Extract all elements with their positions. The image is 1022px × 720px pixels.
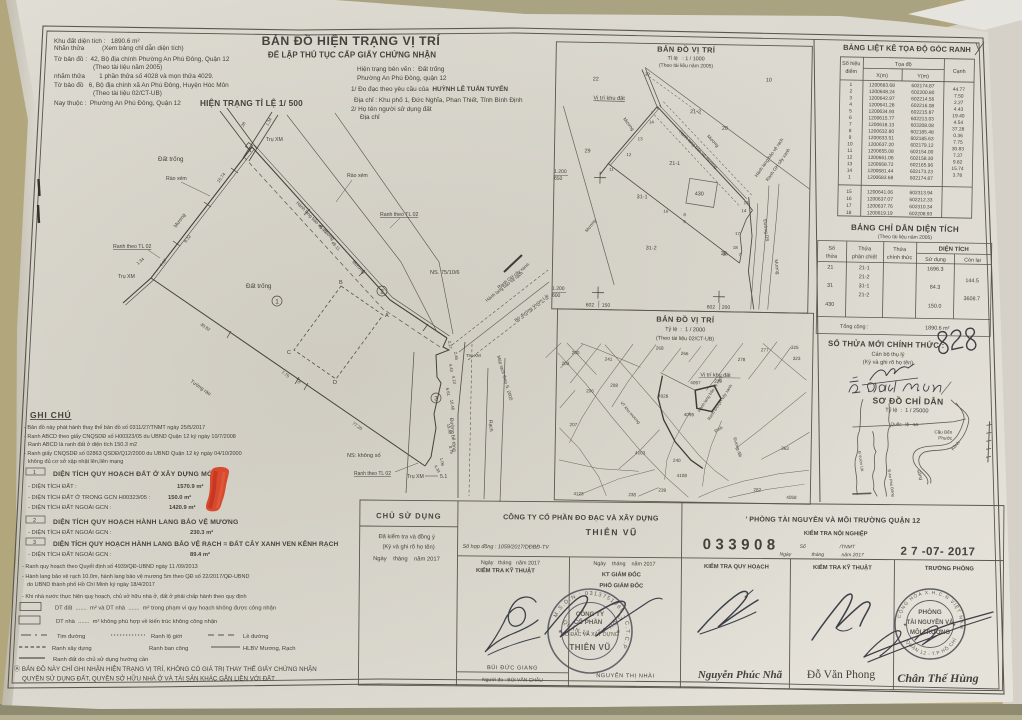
svg-text:0.36: 0.36	[953, 133, 963, 139]
svg-text:Cạnh: Cạnh	[953, 69, 966, 75]
svg-text:năm 2017: năm 2017	[842, 552, 865, 558]
svg-text:C: C	[287, 350, 291, 356]
svg-text:1200641.06: 1200641.06	[867, 189, 893, 195]
svg-text:1200655.08: 1200655.08	[868, 148, 894, 154]
svg-text:(Theo tài liệu 02/CT-UB): (Theo tài liệu 02/CT-UB)	[93, 90, 162, 97]
svg-text:17: 17	[735, 231, 741, 236]
svg-text:không đủ cơ sở xập nhật lên,li: không đủ cơ sở xập nhật lên,liên mạng	[28, 458, 123, 465]
svg-text:7.50: 7.50	[954, 93, 964, 99]
svg-text:Cán bộ thụ lý: Cán bộ thụ lý	[871, 352, 904, 359]
svg-text:Tim đường: Tim đường	[57, 634, 85, 640]
svg-text:Ranh theo TL 02: Ranh theo TL 02	[380, 212, 418, 218]
svg-text:Tỉ lệ : 1 / 1000: Tỉ lệ : 1 / 1000	[667, 55, 704, 63]
svg-text:CHỦ SỬ DỤNG: CHỦ SỬ DỤNG	[376, 511, 441, 521]
svg-text:- Khi nhà nước thực hiện quy: - Khi nhà nước thực hiện quy hoạch, chủ …	[22, 593, 247, 600]
svg-text:266: 266	[681, 351, 689, 356]
svg-text:200: 200	[722, 305, 731, 311]
svg-text:602174.87: 602174.87	[910, 175, 933, 181]
svg-text:602: 602	[707, 304, 716, 310]
svg-text:14: 14	[847, 168, 853, 174]
svg-text:3608.7: 3608.7	[964, 296, 981, 302]
svg-text:- Hành lang bảo vệ rạch 10.0m,: - Hành lang bảo vệ rạch 10.0m, hành lang…	[22, 574, 249, 580]
svg-text:12: 12	[626, 152, 632, 157]
svg-text:Trụ XM: Trụ XM	[407, 474, 424, 480]
svg-text:16: 16	[846, 196, 852, 202]
svg-text:phân chiết: phân chiết	[852, 254, 877, 260]
svg-text:4028: 4028	[658, 394, 669, 399]
svg-text:1: 1	[33, 470, 36, 476]
svg-text:Ranh xây dựng: Ranh xây dựng	[52, 646, 92, 652]
svg-text:2: 2	[849, 89, 852, 95]
svg-text:HLBV Mương, Rạch: HLBV Mương, Rạch	[243, 646, 295, 652]
svg-text:4.43: 4.43	[954, 107, 964, 113]
svg-text:1200681.44: 1200681.44	[867, 168, 893, 174]
svg-text:10: 10	[766, 77, 772, 83]
svg-text:13: 13	[847, 161, 853, 167]
svg-text:9.82: 9.82	[953, 159, 963, 165]
svg-text:602200.80: 602200.80	[911, 90, 934, 96]
svg-text:KT GIÁM ĐỐC: KT GIÁM ĐỐC	[602, 571, 642, 578]
svg-text:18: 18	[846, 210, 852, 216]
svg-text:150.0 m²: 150.0 m²	[168, 494, 191, 501]
svg-text:- DIỆN TÍCH ĐẤT :: - DIỆN TÍCH ĐẤT :	[28, 482, 77, 490]
svg-text:2: 2	[380, 289, 384, 296]
svg-text:1200615.77: 1200615.77	[868, 115, 894, 121]
svg-text:1.200: 1.200	[554, 169, 567, 175]
svg-text:- Ranh giấy CNQSDĐ số 02863 Q: - Ranh giấy CNQSDĐ số 02863 QSDĐ/Q12/200…	[24, 451, 242, 457]
svg-text:4058: 4058	[786, 495, 797, 500]
svg-text:NGUYỄN THỊ NHÀI: NGUYỄN THỊ NHÀI	[596, 672, 654, 680]
svg-text:Đỗ Văn Phong: Đỗ Văn Phong	[807, 668, 875, 681]
svg-text:- DIỆN TÍCH ĐẤT NGOÀI GCN :: - DIỆN TÍCH ĐẤT NGOÀI GCN :	[28, 550, 112, 558]
svg-text:15: 15	[846, 189, 852, 195]
svg-text:1570.9 m²: 1570.9 m²	[177, 483, 203, 490]
svg-text:200: 200	[572, 350, 580, 355]
svg-text:602214.56: 602214.56	[911, 96, 934, 102]
svg-text:Tỷ lệ : 1 / 2000: Tỷ lệ : 1 / 2000	[665, 326, 705, 334]
svg-text:1200619.19: 1200619.19	[867, 210, 893, 216]
svg-text:6: 6	[849, 115, 852, 121]
svg-text:D: D	[333, 380, 337, 386]
svg-text:GHI CHÚ: GHI CHÚ	[30, 409, 72, 420]
svg-text:(Theo tài liệu 02/CT-UB): (Theo tài liệu 02/CT-UB)	[656, 336, 714, 343]
svg-text:- Ranh quy hoạch theo Quyết đ: - Ranh quy hoạch theo Quyết định số 4939…	[22, 564, 198, 570]
svg-text:Người đo : BÙI VĂN CHÂU: Người đo : BÙI VĂN CHÂU	[482, 676, 543, 684]
svg-text:20: 20	[722, 126, 728, 132]
svg-text:A: A	[385, 313, 389, 319]
svg-text:2.27: 2.27	[954, 100, 964, 106]
svg-text:602179.12: 602179.12	[910, 142, 933, 148]
svg-text:SƠ ĐỒ CHỈ DẪN: SƠ ĐỒ CHỈ DẪN	[872, 394, 943, 406]
svg-text:Số hợp đồng : 1059/2017/DĐBĐ-T: Số hợp đồng : 1059/2017/DĐBĐ-TV	[463, 543, 551, 551]
svg-text:203: 203	[562, 361, 570, 366]
svg-text:KIỂM TRA KỸ THUẬT: KIỂM TRA KỸ THUẬT	[813, 564, 872, 572]
svg-text:325: 325	[791, 345, 799, 350]
svg-text:4097: 4097	[690, 380, 701, 385]
svg-text:BẢN ĐỒ VỊ TRÍ: BẢN ĐỒ VỊ TRÍ	[657, 44, 716, 55]
svg-text:Ranh đất do chủ sử dụng hướng: Ranh đất do chủ sử dụng hướng cần	[53, 656, 148, 663]
svg-text:Hiện trạng bên vẽn : Đất trốn: Hiện trạng bên vẽn : Đất trống	[357, 64, 445, 73]
svg-text:4123: 4123	[573, 491, 584, 496]
svg-text:268: 268	[656, 346, 664, 351]
svg-text:Thửa: Thửa	[893, 246, 906, 253]
svg-text:602215.87: 602215.87	[911, 109, 934, 115]
svg-text:1200648.24: 1200648.24	[869, 89, 895, 95]
svg-text:- DIỆN TÍCH ĐẤT NGOÀI GCN :: - DIỆN TÍCH ĐẤT NGOÀI GCN :	[28, 503, 112, 511]
svg-text:602: 602	[586, 302, 595, 308]
svg-text:Địa chỉ: Địa chỉ	[360, 113, 380, 121]
svg-text:KIỂM TRA KỸ THUẬT: KIỂM TRA KỸ THUẬT	[476, 567, 535, 575]
svg-text:430: 430	[825, 302, 834, 308]
svg-text:4.54: 4.54	[953, 120, 963, 126]
svg-text:10: 10	[847, 141, 853, 147]
svg-text:điểm: điểm	[845, 68, 857, 75]
svg-text:Ⓐ BẢN ĐỒ NÀY CHỈ GHI NHẬN HIỆN: Ⓐ BẢN ĐỒ NÀY CHỈ GHI NHẬN HIỆN TRẠNG VỊ …	[14, 665, 317, 673]
svg-text:Ranh theo TL 02: Ranh theo TL 02	[354, 471, 391, 477]
svg-text:(Ký và ghi rõ họ tên): (Ký và ghi rõ họ tên)	[382, 544, 434, 550]
svg-text:do UBND thành phố Hồ Chí Minh: do UBND thành phố Hồ Chí Minh ký ngày 18…	[27, 582, 155, 588]
svg-text:1: 1	[850, 82, 853, 88]
svg-text:QUYỀN SỬ DỤNG ĐẤT, QUYỀN SỞ HỮ: QUYỀN SỬ DỤNG ĐẤT, QUYỀN SỞ HỮU NHÀ Ở VÀ…	[22, 675, 275, 683]
svg-text:602208.93: 602208.93	[909, 211, 932, 217]
svg-text:tháng: tháng	[812, 552, 825, 558]
svg-text:/TNMT: /TNMT	[839, 544, 856, 550]
svg-text:31-2: 31-2	[646, 245, 657, 251]
svg-text:7.37: 7.37	[953, 153, 963, 159]
svg-text:1200641.28: 1200641.28	[869, 102, 895, 108]
svg-text:206: 206	[586, 388, 594, 393]
svg-text:29: 29	[584, 148, 590, 154]
svg-text:1200642.97: 1200642.97	[869, 96, 895, 102]
svg-text:430: 430	[695, 191, 704, 197]
svg-text:1200637.20: 1200637.20	[868, 142, 894, 148]
svg-text:1200618.13: 1200618.13	[868, 122, 894, 128]
svg-text:Nay thuộc : Phường An Phú Đôn: Nay thuộc : Phường An Phú Đông, Quận 12	[54, 100, 181, 107]
svg-text:DT nhà ....... m² không phù: DT nhà ....... m² không phù hợp về kiến …	[56, 619, 217, 625]
svg-text:7.75: 7.75	[953, 140, 963, 146]
svg-text:21-2: 21-2	[690, 109, 701, 115]
svg-text:- DIỆN TÍCH ĐẤT Ở TRONG GCN: - DIỆN TÍCH ĐẤT Ở TRONG GCN H00323/05 :	[28, 493, 151, 501]
svg-text:1200632.80: 1200632.80	[868, 129, 894, 135]
svg-text:239: 239	[658, 488, 666, 493]
svg-text:Y(m): Y(m)	[917, 74, 929, 80]
svg-text:Nhãn thửa (Xem bảng c: Nhãn thửa (Xem bảng chỉ dẫn diện tích)	[54, 43, 184, 52]
svg-text:1200683.68: 1200683.68	[867, 175, 893, 181]
svg-text:1890.6 m²: 1890.6 m²	[925, 325, 950, 331]
svg-text:21-1: 21-1	[669, 161, 680, 167]
svg-text:31-1: 31-1	[637, 194, 648, 200]
svg-text:30.83: 30.83	[952, 146, 965, 152]
svg-text:1200661.06: 1200661.06	[868, 155, 894, 161]
svg-text:1200637.76: 1200637.76	[867, 203, 893, 209]
svg-text:13: 13	[638, 136, 644, 141]
svg-text:1200634.93: 1200634.93	[869, 109, 895, 115]
svg-text:Tờ bản đồ : 42, Bộ địa chính: Tờ bản đồ : 42, Bộ địa chính Phường An P…	[54, 54, 230, 63]
svg-text:602185.48: 602185.48	[911, 129, 934, 135]
svg-text:Phường An Phú Đông, quận 12: Phường An Phú Đông, quận 12	[357, 75, 447, 82]
svg-text:BẢNG CHỈ DẪN DIỆN TÍCH: BẢNG CHỈ DẪN DIỆN TÍCH	[851, 223, 959, 234]
svg-text:nhãm thửa 1 phần thửa s: nhãm thửa 1 phần thửa số 4028 và mọn thử…	[54, 71, 214, 80]
svg-text:2: 2	[33, 518, 36, 524]
svg-text:277: 277	[761, 347, 769, 352]
svg-text:SỐ THỬA MỚI CHÍNH THỨC :: SỐ THỬA MỚI CHÍNH THỨC :	[828, 338, 945, 350]
svg-text:241: 241	[605, 357, 613, 362]
svg-text:208: 208	[610, 383, 618, 388]
svg-text:Ngày tháng năm 2017: Ngày tháng năm 2017	[481, 560, 540, 567]
svg-text:Ngày tháng năm 2017: Ngày tháng năm 2017	[593, 561, 655, 568]
svg-text:7: 7	[849, 122, 852, 128]
svg-text:Chân Thế Hùng: Chân Thế Hùng	[897, 671, 978, 685]
svg-text:1200637.07: 1200637.07	[867, 196, 893, 202]
svg-text:19.40: 19.40	[952, 113, 965, 119]
svg-text:Phước: Phước	[938, 435, 953, 440]
svg-text:240: 240	[673, 458, 681, 463]
svg-text:84.3: 84.3	[930, 284, 941, 290]
svg-text:(Ký và ghi rõ họ tên): (Ký và ghi rõ họ tên)	[863, 360, 914, 367]
svg-text:BẢN ĐỒ VỊ TRÍ: BẢN ĐỒ VỊ TRÍ	[656, 314, 715, 325]
svg-text:Tờ bảo đồ 6, Bộ địa chính xã: Tờ bảo đồ 6, Bộ địa chính xã An Phú Đông…	[54, 80, 229, 89]
svg-text:230.3 m²: 230.3 m²	[190, 529, 213, 536]
svg-text:3: 3	[434, 396, 438, 403]
svg-text:650: 650	[554, 176, 563, 182]
svg-text:PHÒNG: PHÒNG	[918, 607, 941, 616]
svg-text:31-1: 31-1	[859, 283, 870, 289]
svg-text:22: 22	[593, 76, 599, 82]
svg-text:NS. 75/10/6: NS. 75/10/6	[430, 270, 460, 276]
svg-text:19: 19	[645, 71, 651, 76]
svg-text:278: 278	[738, 357, 746, 362]
svg-text:602213.03: 602213.03	[911, 116, 934, 122]
svg-text:44.77: 44.77	[953, 87, 966, 93]
svg-text:282: 282	[753, 487, 761, 492]
svg-text:21: 21	[827, 265, 833, 271]
svg-text:BÙI ĐỨC GIANG: BÙI ĐỨC GIANG	[487, 664, 538, 671]
svg-text:1: 1	[848, 174, 851, 180]
svg-text:Số: Số	[828, 246, 835, 252]
svg-text:89.4 m²: 89.4 m²	[190, 551, 210, 558]
svg-text:Đất trống: Đất trống	[246, 283, 272, 290]
svg-text:Tổng cộng :: Tổng cộng :	[840, 323, 869, 330]
svg-text:207: 207	[570, 422, 578, 427]
svg-text:12: 12	[847, 155, 853, 161]
svg-text:602154.00: 602154.00	[910, 149, 933, 155]
svg-text:Số hiệu: Số hiệu	[842, 61, 860, 67]
svg-text:4103: 4103	[635, 450, 646, 455]
svg-text:Ngày: Ngày	[780, 552, 792, 558]
svg-text:(Theo tài liệu năm 2005): (Theo tài liệu năm 2005)	[659, 63, 714, 70]
svg-text:Thửa: Thửa	[858, 245, 871, 252]
svg-text:602212.33: 602212.33	[909, 197, 932, 203]
svg-text:11: 11	[609, 167, 614, 172]
svg-text:603208.08: 603208.08	[911, 123, 934, 129]
svg-text:21-2: 21-2	[858, 292, 869, 298]
svg-text:Sử dụng: Sử dụng	[925, 256, 946, 263]
svg-text:21-2: 21-2	[859, 274, 870, 280]
svg-text:238: 238	[628, 492, 636, 497]
svg-text:- Bản đồ này phát hành thay th: - Bản đồ này phát hành thay thế bản đồ s…	[24, 425, 205, 431]
svg-text:Rạch: Rạch	[487, 420, 494, 432]
svg-text:18: 18	[733, 245, 739, 250]
svg-text:Trụ XM: Trụ XM	[266, 137, 283, 143]
svg-text:Ngày tháng năm 2017: Ngày tháng năm 2017	[373, 556, 440, 563]
svg-text:2 7 -07- 2017: 2 7 -07- 2017	[901, 546, 976, 559]
svg-text:3: 3	[33, 540, 36, 546]
svg-text:B: B	[339, 280, 343, 286]
svg-text:1420.9 m²: 1420.9 m²	[169, 504, 195, 511]
svg-text:- Ranh ABCD theo giấy CNQSDĐ s: - Ranh ABCD theo giấy CNQSDĐ số H00323/0…	[24, 434, 236, 440]
svg-text:602313.94: 602313.94	[909, 190, 932, 196]
svg-text:1200633.51: 1200633.51	[868, 135, 894, 141]
svg-text:150.0: 150.0	[928, 303, 942, 309]
svg-text:4099: 4099	[684, 412, 695, 417]
svg-text:HIỆN TRẠNG TỈ LỆ 1/ 500: HIỆN TRẠNG TỈ LỆ 1/ 500	[200, 97, 303, 108]
svg-text:Trụ XM: Trụ XM	[118, 274, 135, 280]
svg-text:602216.08: 602216.08	[911, 103, 934, 109]
svg-text:Ranh lộ giới: Ranh lộ giới	[151, 634, 182, 640]
svg-text:1200668.72: 1200668.72	[868, 162, 894, 168]
svg-text:Tọa độ: Tọa độ	[895, 62, 912, 68]
svg-text:chính thức: chính thức	[887, 255, 913, 261]
svg-text:15.74: 15.74	[951, 166, 964, 172]
svg-text:Khu đất diện tích : 1890.6 m: Khu đất diện tích : 1890.6 m²	[54, 36, 140, 45]
svg-text:600: 600	[552, 293, 561, 299]
svg-text:Nguyễn Phúc Nhã: Nguyễn Phúc Nhã	[697, 669, 783, 681]
svg-text:602158.30: 602158.30	[910, 156, 933, 162]
svg-text:17: 17	[846, 203, 852, 209]
svg-text:Ranh ban công: Ranh ban công	[149, 646, 188, 652]
svg-text:Đất trống: Đất trống	[158, 156, 184, 163]
svg-text:31: 31	[827, 283, 833, 289]
svg-text:(Theo tài liệu năm 2005): (Theo tài liệu năm 2005)	[878, 234, 933, 241]
svg-text:DIỆN TÍCH QUY HOẠCH HÀNH LANG: DIỆN TÍCH QUY HOẠCH HÀNH LANG BẢO VỆ MƯƠ…	[53, 517, 238, 526]
svg-text:602173.23: 602173.23	[910, 169, 933, 175]
svg-text:144.5: 144.5	[965, 278, 979, 284]
svg-text:1200683.68: 1200683.68	[869, 82, 895, 88]
svg-text:NS: không số: NS: không số	[347, 453, 381, 459]
svg-text:- DIỆN TÍCH ĐẤT NGOÀI GCN :: - DIỆN TÍCH ĐẤT NGOÀI GCN :	[28, 528, 112, 536]
svg-text:602185.63: 602185.63	[910, 136, 933, 142]
svg-text:2/ Họ tên người sử dụng đất: 2/ Họ tên người sử dụng đất	[351, 104, 432, 113]
svg-text:ĐO ĐẠC VÀ XÂY DỰNG: ĐO ĐẠC VÀ XÂY DỰNG	[561, 631, 619, 638]
svg-text:4108: 4108	[677, 473, 688, 478]
svg-text:4: 4	[849, 102, 852, 108]
svg-text:8: 8	[849, 128, 852, 134]
svg-text:Lề đường: Lề đường	[243, 634, 268, 640]
svg-text:14: 14	[649, 119, 655, 124]
svg-text:ĐỂ LẬP THỦ TỤC CẤP GIẤY CHỨNG: ĐỂ LẬP THỦ TỤC CẤP GIẤY CHỨNG NHẬN	[268, 50, 436, 60]
svg-text:DT đất ....... m² và DT nhà: DT đất ....... m² và DT nhà ....... m² t…	[55, 606, 276, 612]
svg-text:Ranh theo TL 02: Ranh theo TL 02	[113, 244, 151, 250]
svg-text:11: 11	[847, 148, 852, 154]
svg-text:Tỷ lệ : 1 / 25000: Tỷ lệ : 1 / 25000	[885, 407, 928, 415]
svg-text:Rào xém: Rào xém	[347, 173, 368, 179]
svg-text:150: 150	[602, 303, 611, 309]
svg-text:Cầu Bến: Cầu Bến	[934, 429, 952, 434]
svg-text:363: 363	[781, 446, 789, 451]
svg-text:16: 16	[663, 209, 669, 214]
svg-text:1: 1	[275, 299, 279, 306]
svg-text:323: 323	[793, 356, 801, 361]
svg-text:Ranh ABCD là ranh đất ở diện t: Ranh ABCD là ranh đất ở diện tích 150.3 …	[28, 441, 137, 448]
svg-text:5.1: 5.1	[440, 474, 447, 480]
svg-text:KIỂM TRA QUY HOẠCH: KIỂM TRA QUY HOẠCH	[704, 563, 769, 571]
svg-text:THIÊN VŨ: THIÊN VŨ	[586, 526, 638, 537]
svg-text:Còn lại: Còn lại	[964, 258, 981, 264]
svg-text:3.78: 3.78	[953, 173, 963, 179]
svg-text:033908: 033908	[703, 536, 780, 554]
svg-text:1696.3: 1696.3	[927, 266, 944, 272]
svg-text:(Theo tài liệu năm 2005): (Theo tài liệu năm 2005)	[93, 64, 162, 71]
svg-text:3: 3	[849, 95, 852, 101]
svg-text:13: 13	[744, 200, 750, 205]
svg-text:Rào xém: Rào xém	[166, 176, 187, 182]
svg-text:Đã kiểm tra và đồng ý: Đã kiểm tra và đồng ý	[378, 533, 435, 540]
svg-text:X(m): X(m)	[876, 73, 888, 79]
svg-text:14: 14	[741, 208, 747, 213]
svg-text:37.28: 37.28	[952, 126, 965, 132]
svg-text:Vị trí khu đất: Vị trí khu đất	[593, 95, 625, 102]
svg-text:5: 5	[849, 108, 852, 114]
svg-text:30: 30	[723, 252, 729, 257]
svg-text:602310.34: 602310.34	[909, 204, 932, 210]
svg-text:1.200: 1.200	[552, 286, 565, 292]
svg-text:602165.96: 602165.96	[910, 162, 933, 168]
svg-text:thửa: thửa	[826, 253, 837, 260]
svg-text:BẢN ĐỒ HIỆN TRẠNG VỊ TRÍ: BẢN ĐỒ HIỆN TRẠNG VỊ TRÍ	[262, 33, 441, 48]
svg-text:Địa chỉ : Khu phố 1, Đức Nghĩa: Địa chỉ : Khu phố 1, Đức Nghĩa, Phan Thi…	[354, 95, 523, 104]
svg-text:Quốc lộ 1A: Quốc lộ 1A	[890, 422, 919, 428]
svg-text:THIÊN VŨ: THIÊN VŨ	[569, 643, 610, 652]
svg-text:21-1: 21-1	[859, 265, 870, 271]
svg-text:9: 9	[849, 135, 852, 141]
svg-text:602174.87: 602174.87	[911, 83, 934, 89]
